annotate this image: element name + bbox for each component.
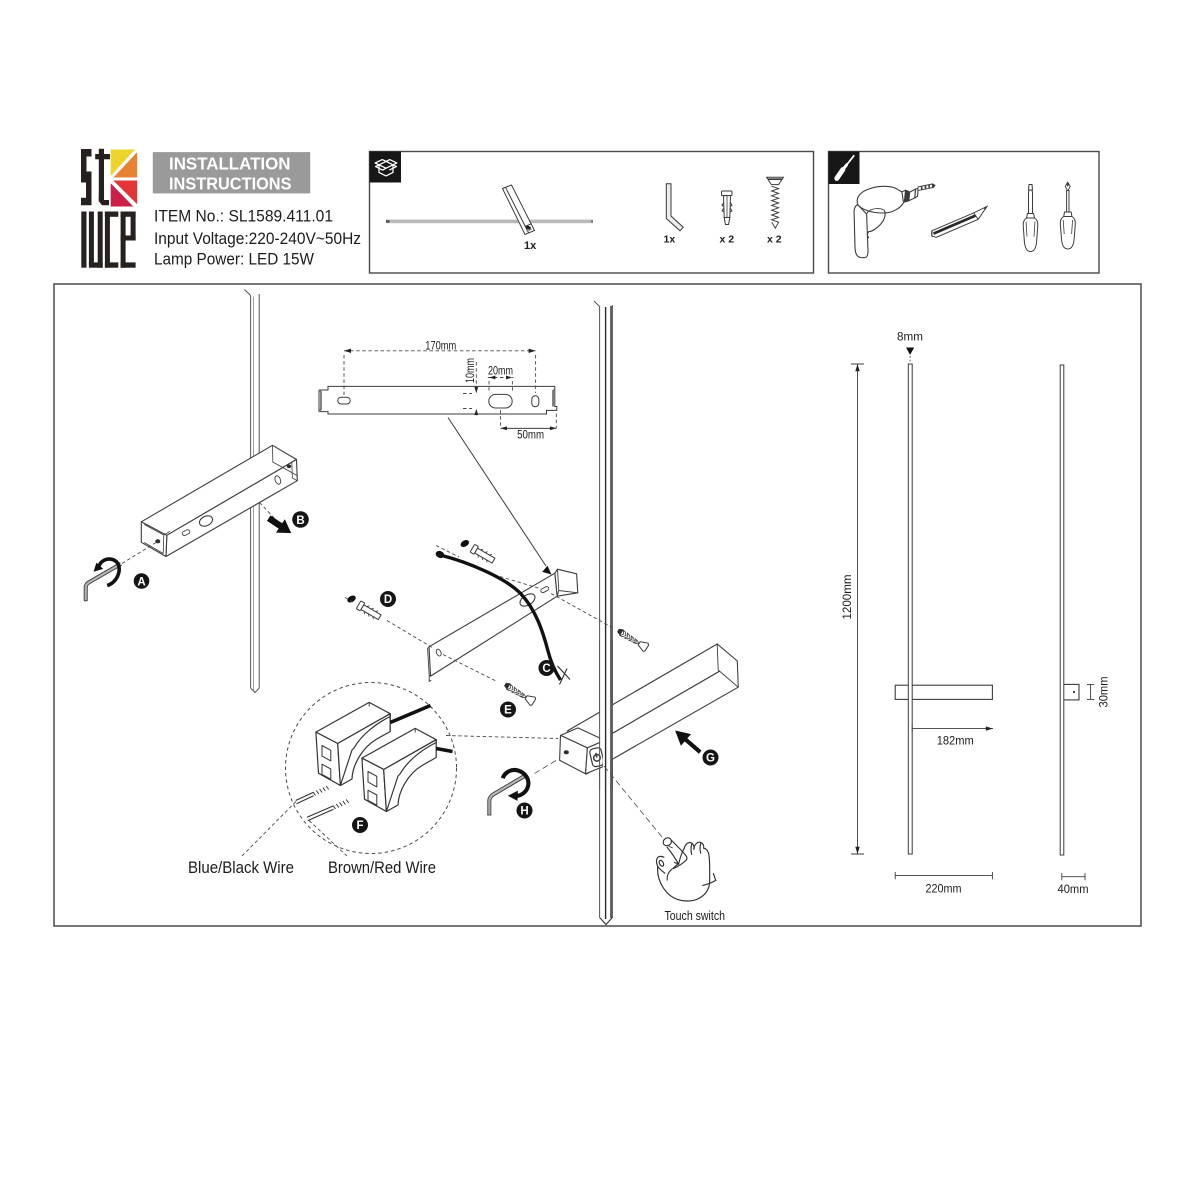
svg-text:1200mm: 1200mm (840, 574, 854, 619)
svg-text:50mm: 50mm (517, 428, 544, 442)
svg-text:8mm: 8mm (897, 330, 923, 344)
svg-text:10mm: 10mm (463, 358, 477, 383)
svg-text:G: G (706, 753, 715, 765)
svg-text:1x: 1x (664, 234, 676, 246)
svg-text:x 2: x 2 (767, 234, 782, 246)
svg-text:Touch switch: Touch switch (665, 908, 726, 923)
svg-text:220mm: 220mm (926, 882, 962, 896)
svg-text:F: F (356, 820, 363, 832)
svg-text:INSTRUCTIONS: INSTRUCTIONS (169, 174, 292, 194)
svg-text:1x: 1x (524, 240, 537, 252)
svg-text:Input Voltage:220-240V~50Hz: Input Voltage:220-240V~50Hz (154, 230, 361, 248)
svg-text:30mm: 30mm (1097, 677, 1111, 708)
svg-text:ITEM No.: SL1589.411.01: ITEM No.: SL1589.411.01 (154, 208, 333, 226)
svg-text:H: H (520, 806, 528, 818)
svg-text:40mm: 40mm (1058, 882, 1089, 896)
svg-text:A: A (137, 576, 145, 588)
svg-text:Brown/Red Wire: Brown/Red Wire (328, 858, 436, 877)
svg-text:182mm: 182mm (937, 734, 974, 748)
svg-text:B: B (296, 515, 304, 527)
svg-text:x 2: x 2 (720, 234, 735, 246)
svg-text:E: E (504, 705, 512, 717)
svg-text:INSTALLATION: INSTALLATION (169, 154, 291, 174)
svg-text:Lamp Power: LED 15W: Lamp Power: LED 15W (154, 251, 314, 269)
svg-text:Blue/Black Wire: Blue/Black Wire (188, 858, 294, 877)
svg-text:D: D (384, 594, 392, 606)
svg-text:C: C (542, 663, 550, 675)
svg-text:170mm: 170mm (425, 339, 456, 353)
svg-text:20mm: 20mm (488, 364, 513, 378)
